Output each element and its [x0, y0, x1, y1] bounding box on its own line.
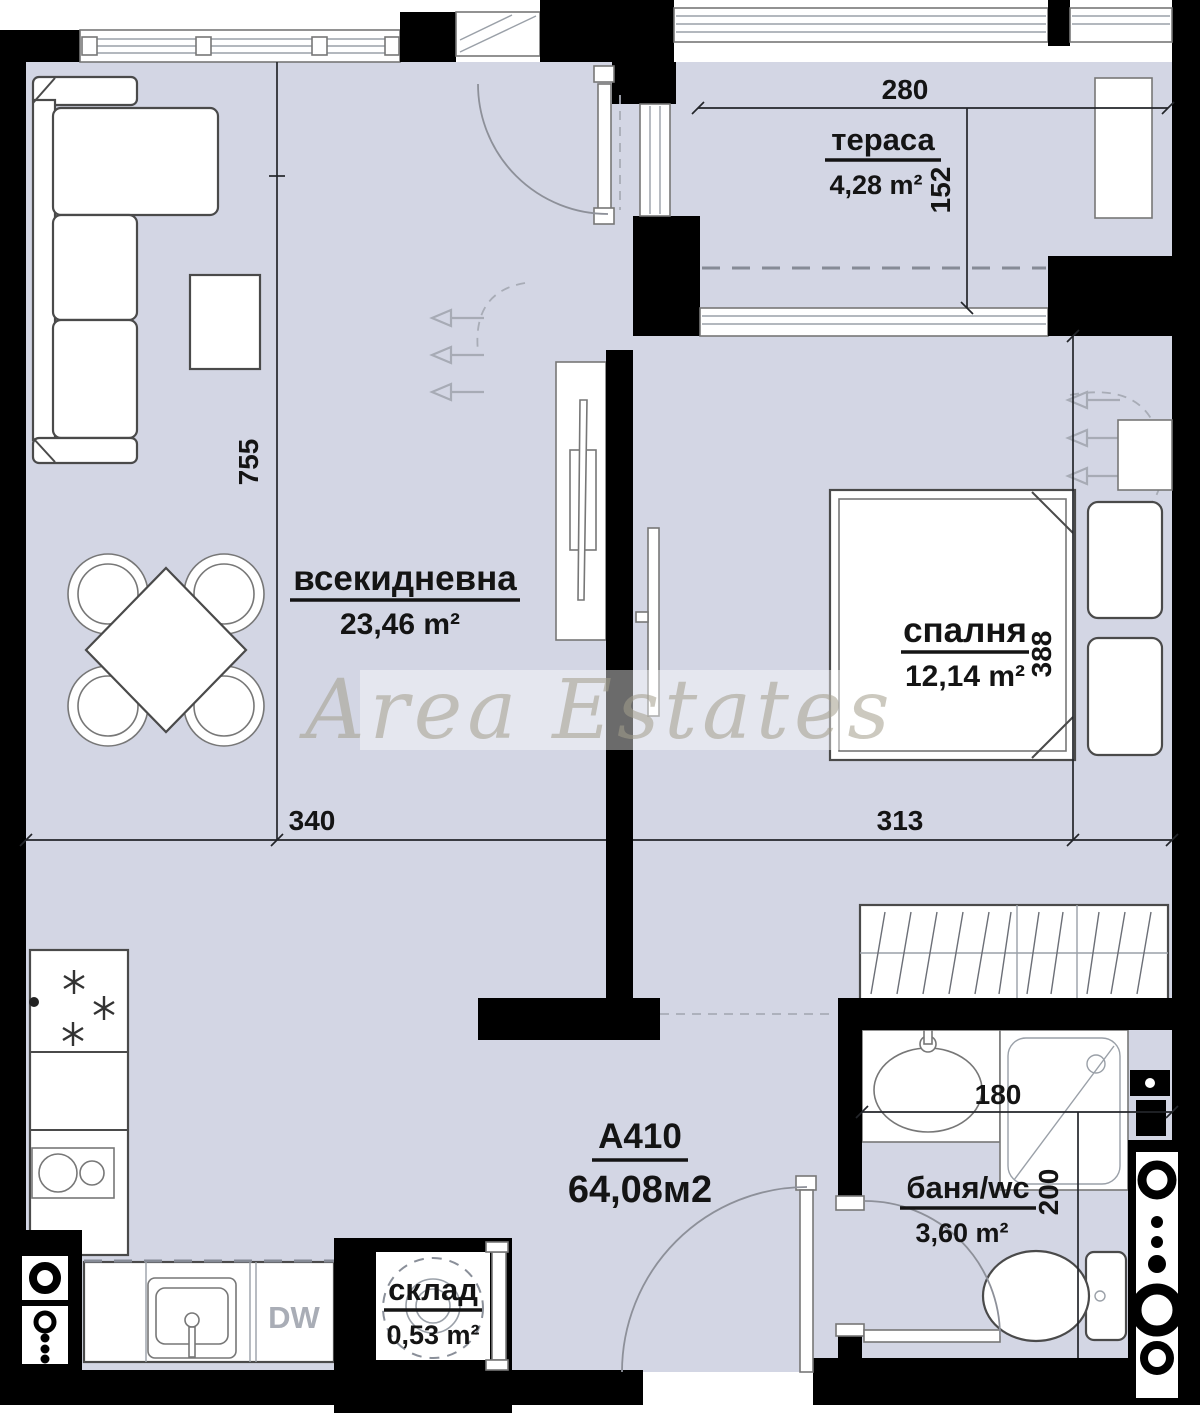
dim-bedroom-width: 313: [877, 805, 924, 836]
toilet: [983, 1251, 1126, 1341]
bedroom-bath-wall: [838, 998, 1172, 1030]
pillow: [1088, 502, 1162, 618]
kitchen-counter-row: DW: [84, 1261, 334, 1362]
svg-text:склад: склад: [388, 1272, 478, 1307]
kitchen-column: [29, 950, 128, 1255]
svg-text:спалня: спалня: [903, 611, 1027, 650]
dishwasher-label: DW: [268, 1300, 320, 1335]
svg-text:всекидневна: всекидневна: [293, 559, 517, 598]
pipe-shaft: [1128, 1140, 1200, 1405]
shower-fixtures: [1130, 1070, 1170, 1136]
wardrobe: [860, 905, 1168, 1000]
ac-unit: [1118, 420, 1172, 490]
storage-label: склад 0,53 m²: [384, 1272, 482, 1350]
dim-living-height: 755: [233, 439, 264, 486]
svg-text:23,46 m²: 23,46 m²: [340, 608, 460, 641]
dim-terrace-depth: 152: [925, 167, 956, 214]
kitchen-sink: [148, 1278, 236, 1358]
bedroom-label: спалня 12,14 m²: [901, 611, 1029, 693]
svg-text:12,14 m²: 12,14 m²: [905, 660, 1025, 693]
living-window: [80, 30, 400, 62]
svg-text:тераса: тераса: [831, 122, 935, 157]
dim-bedroom-depth: 388: [1026, 631, 1057, 678]
watermark: Area Estates: [298, 663, 894, 758]
svg-text:3,60 m²: 3,60 m²: [915, 1218, 1008, 1248]
dim-bath-depth: 200: [1033, 1169, 1064, 1216]
apartment-total-area: 64,08м2: [568, 1169, 712, 1211]
terrace-bench: [1095, 78, 1152, 218]
svg-text:0,53 m²: 0,53 m²: [386, 1320, 479, 1350]
cooktop: [32, 1148, 114, 1198]
pillow: [1088, 638, 1162, 755]
entry-side-window: [456, 12, 540, 56]
floor-plan-svg: DW: [0, 0, 1200, 1413]
fridge-hinge: [29, 997, 39, 1007]
svg-text:баня/wc: баня/wc: [906, 1170, 1029, 1205]
dining-set: [68, 554, 264, 746]
dim-living-width: 340: [289, 805, 336, 836]
terrace-lower-window: [700, 308, 1048, 336]
tv-cabinet: [556, 362, 606, 640]
shower: [1000, 1030, 1128, 1190]
bath-left-wall: [838, 1030, 862, 1210]
coffee-table: [190, 275, 260, 369]
watermark-text: Area Estates: [298, 663, 894, 758]
terrace-window: [674, 0, 1172, 46]
laundry-block: [8, 1230, 82, 1376]
svg-text:4,28 m²: 4,28 m²: [829, 170, 922, 200]
apartment-id: A410: [598, 1117, 682, 1156]
floor-plan-page: DW: [0, 0, 1200, 1413]
dim-bath-width: 180: [975, 1079, 1022, 1110]
corridor-window: [640, 104, 670, 216]
storage-door: [492, 1252, 506, 1360]
dim-terrace-width: 280: [882, 74, 929, 105]
